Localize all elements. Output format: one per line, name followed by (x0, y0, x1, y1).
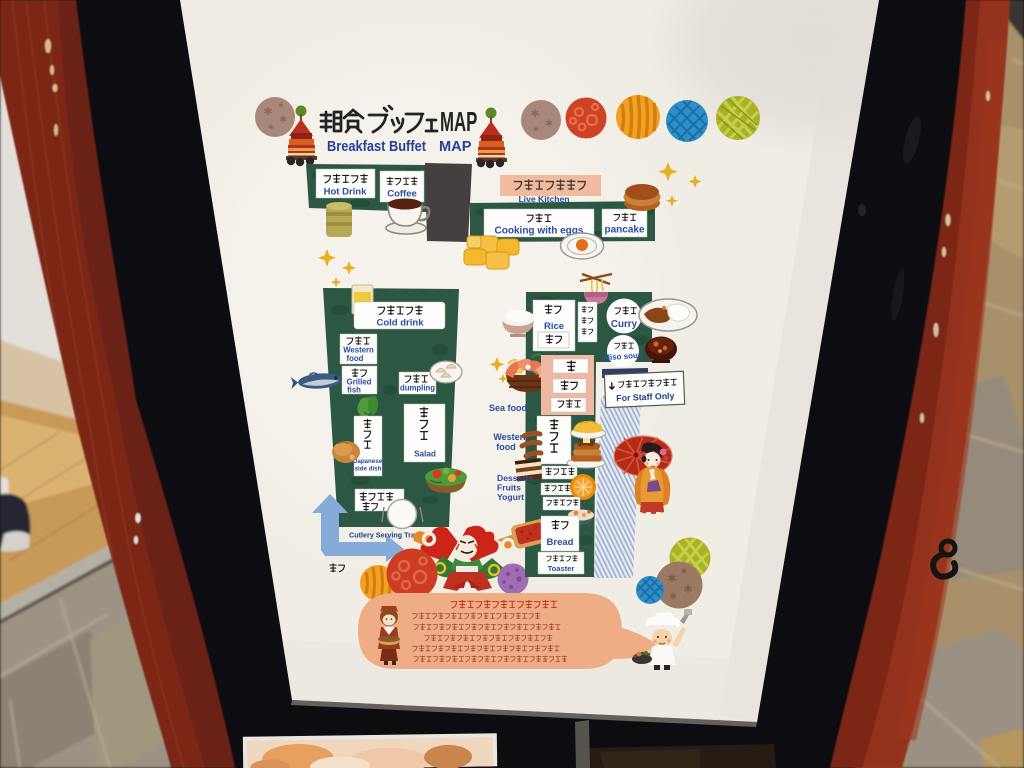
svg-text:Salad: Salad (414, 450, 436, 459)
svg-text:Breakfast Buffet: Breakfast Buffet (327, 139, 426, 155)
svg-text:fish: fish (347, 386, 361, 395)
svg-text:Curry: Curry (611, 319, 638, 330)
svg-text:Bread: Bread (547, 537, 574, 548)
svg-text:side dish: side dish (355, 466, 382, 473)
svg-text:pancake: pancake (604, 225, 644, 236)
svg-text:Desserts: Desserts (497, 473, 534, 483)
svg-text:Sea food: Sea food (489, 403, 527, 413)
svg-text:Cutlery Serving Tray: Cutlery Serving Tray (349, 531, 419, 540)
svg-text:Coffee: Coffee (387, 189, 417, 200)
svg-text:dumpling: dumpling (400, 384, 435, 393)
svg-text:food: food (496, 442, 516, 452)
svg-text:food: food (347, 354, 364, 363)
svg-text:Toaster: Toaster (548, 564, 575, 573)
svg-text:MAP: MAP (440, 106, 477, 138)
svg-text:Cold drink: Cold drink (377, 318, 425, 329)
svg-text:MAP: MAP (439, 139, 472, 155)
svg-text:Fruits: Fruits (497, 483, 521, 493)
svg-text:Rice: Rice (544, 321, 564, 332)
svg-text:Japanese: Japanese (354, 458, 383, 465)
svg-text:Hot Drink: Hot Drink (324, 187, 367, 198)
svg-text:Yogurt: Yogurt (497, 492, 524, 502)
